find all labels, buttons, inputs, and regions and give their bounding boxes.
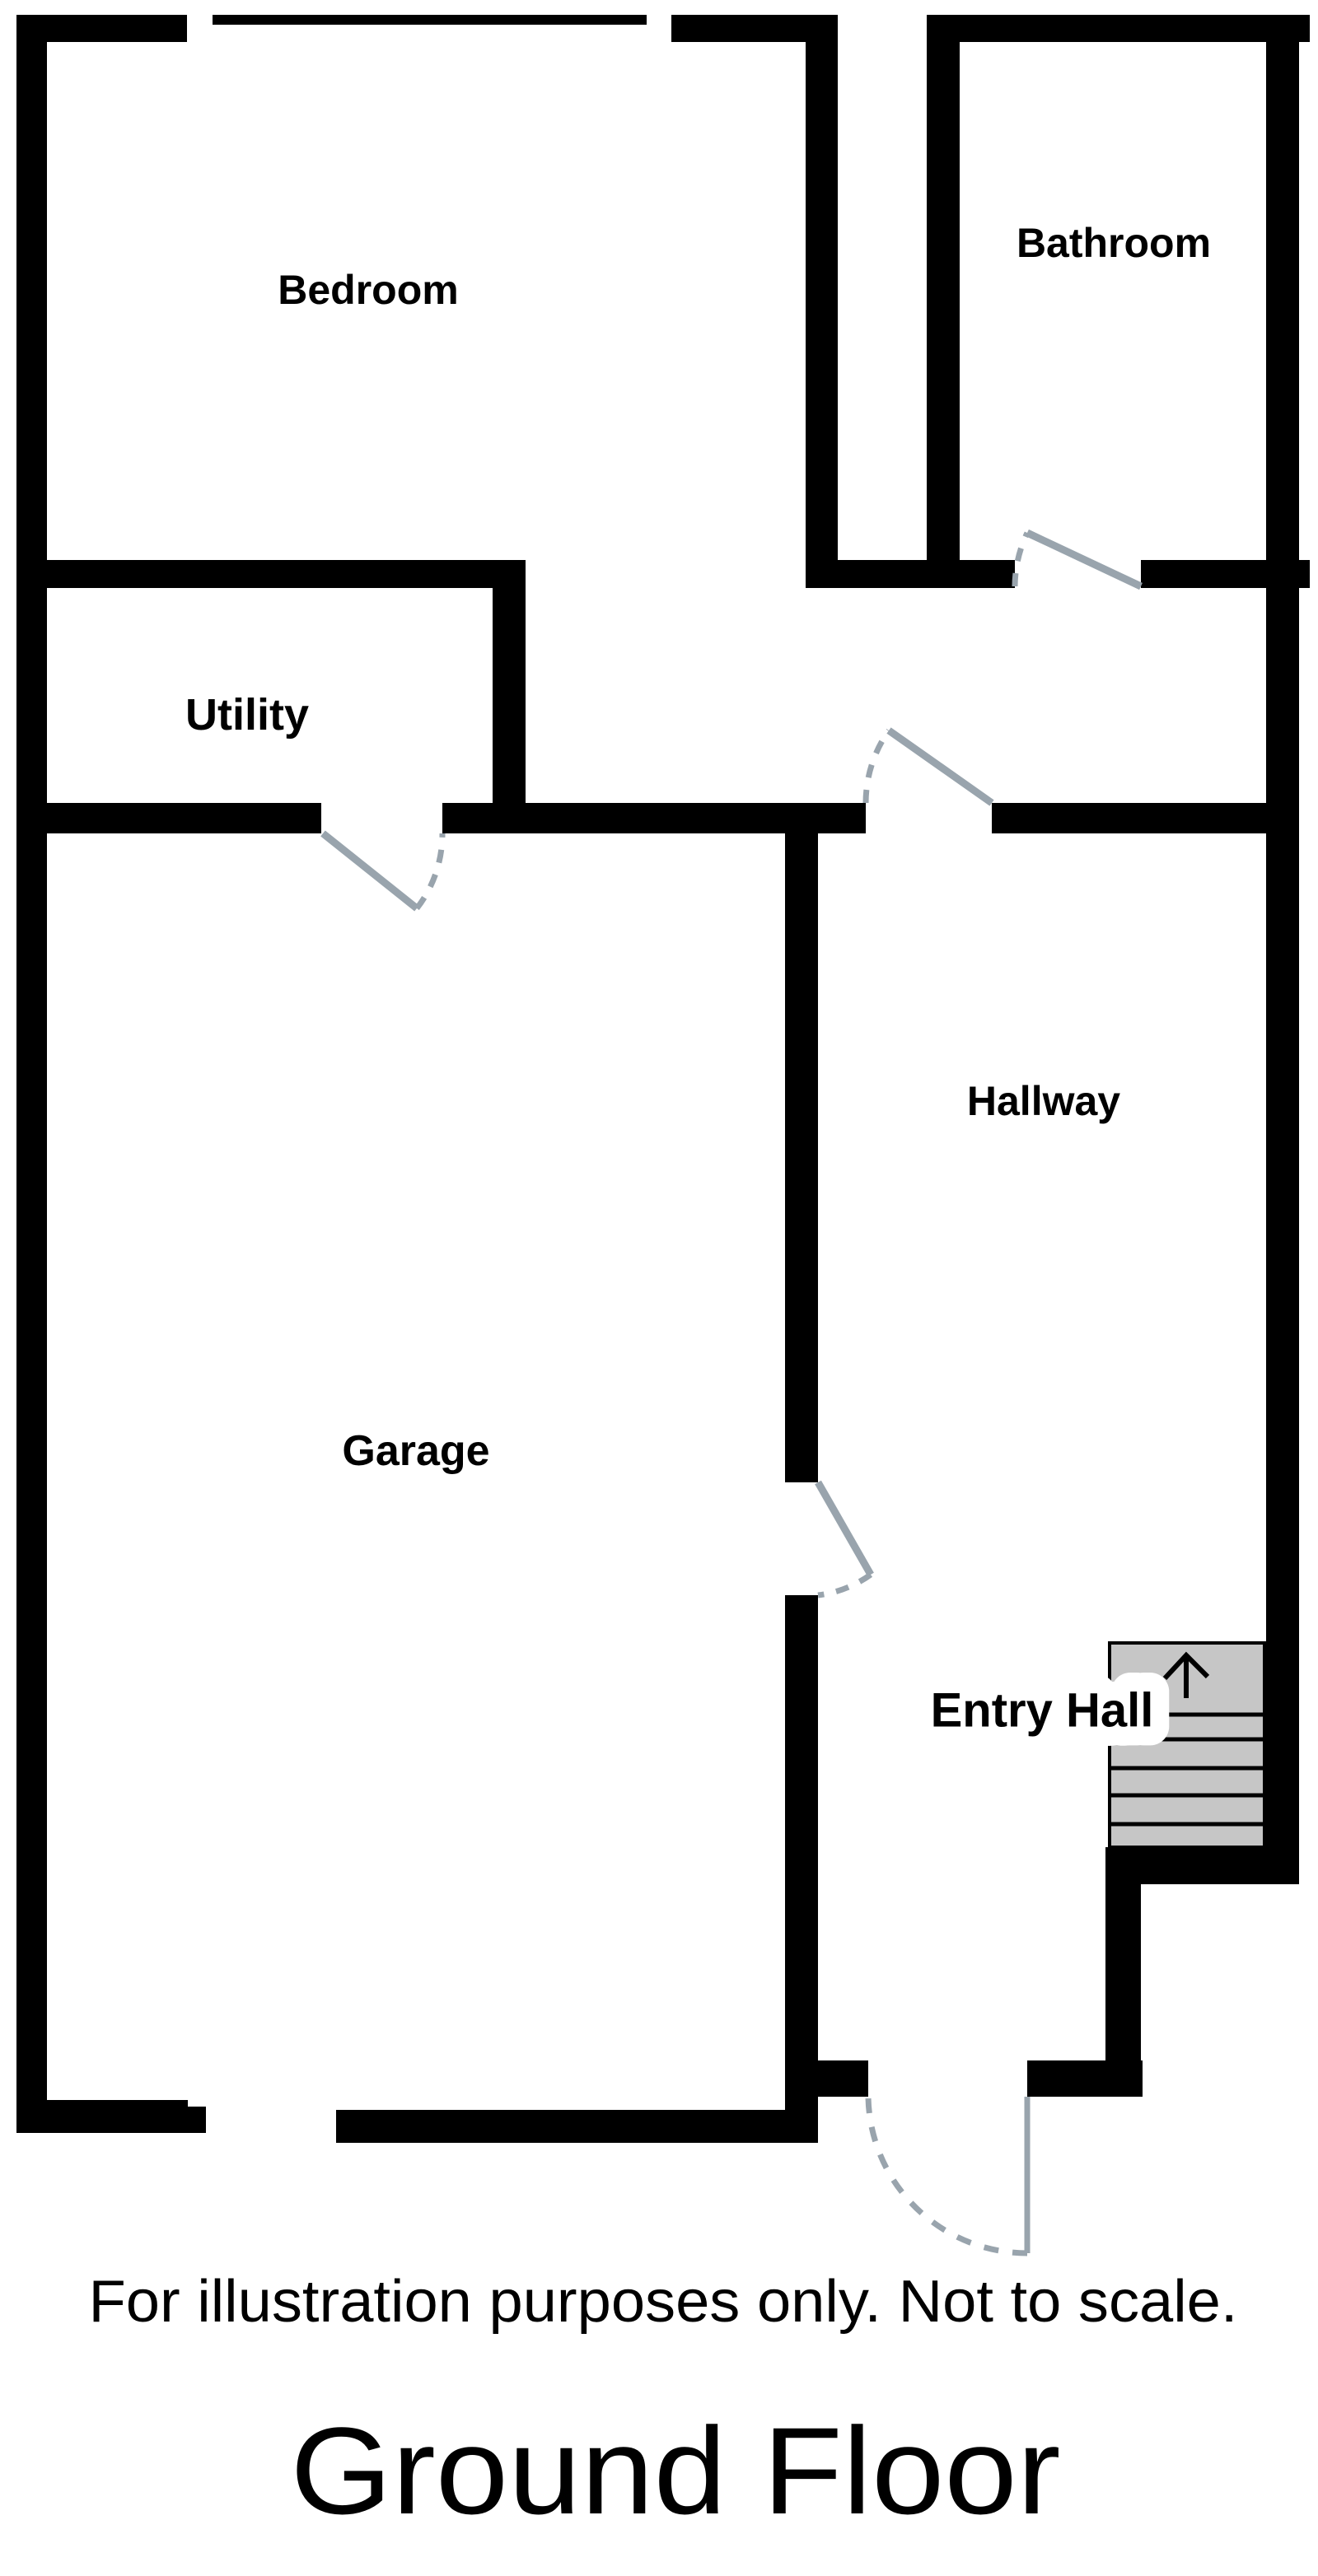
wall-divider-upper (785, 833, 818, 1482)
wall-bedroom-right (806, 15, 838, 588)
wall-bathroom-top (927, 15, 1310, 42)
wall-garage-bottom-tab (188, 2107, 206, 2133)
wall-right-outer (1266, 15, 1299, 1884)
plan-background (0, 0, 1318, 2576)
wall-divider-lower (785, 1595, 818, 2143)
hallway-label: Hallway (967, 1078, 1120, 1124)
wall-utility-bottom (16, 803, 321, 833)
floor-plan-svg: Bedroom Bathroom Utility Garage Hallway … (0, 0, 1318, 2576)
utility-label: Utility (185, 690, 309, 740)
garage-label: Garage (342, 1427, 489, 1475)
wall-under-stairs (1105, 1847, 1299, 1884)
wall-front-left (818, 2060, 868, 2097)
wall-front-right (1027, 2060, 1143, 2097)
wall-bathroom-left (927, 15, 960, 588)
staircase (1110, 1643, 1264, 1847)
floor-plan-page: Bedroom Bathroom Utility Garage Hallway … (0, 0, 1318, 2576)
disclaimer-text: For illustration purposes only. Not to s… (89, 2269, 1238, 2335)
wall-left-outer (16, 15, 47, 2133)
bathroom-label: Bathroom (1017, 220, 1211, 266)
wall-utility-top (16, 560, 526, 588)
page-title: Ground Floor (291, 2401, 1061, 2540)
bedroom-label: Bedroom (278, 267, 458, 313)
wall-garage-bottom-right (336, 2110, 818, 2143)
entry-hall-label: Entry Hall (931, 1684, 1154, 1738)
bedroom-window (213, 15, 647, 25)
wall-garage-top (442, 803, 866, 833)
wall-utility-right (493, 560, 526, 833)
wall-hallway-top (992, 803, 1299, 833)
wall-bathroom-bottom-right (1141, 560, 1310, 588)
wall-garage-bottom-left (16, 2100, 188, 2133)
wall-bedroom-top-left (16, 15, 187, 42)
wall-bathroom-bottom-left (806, 560, 1015, 588)
